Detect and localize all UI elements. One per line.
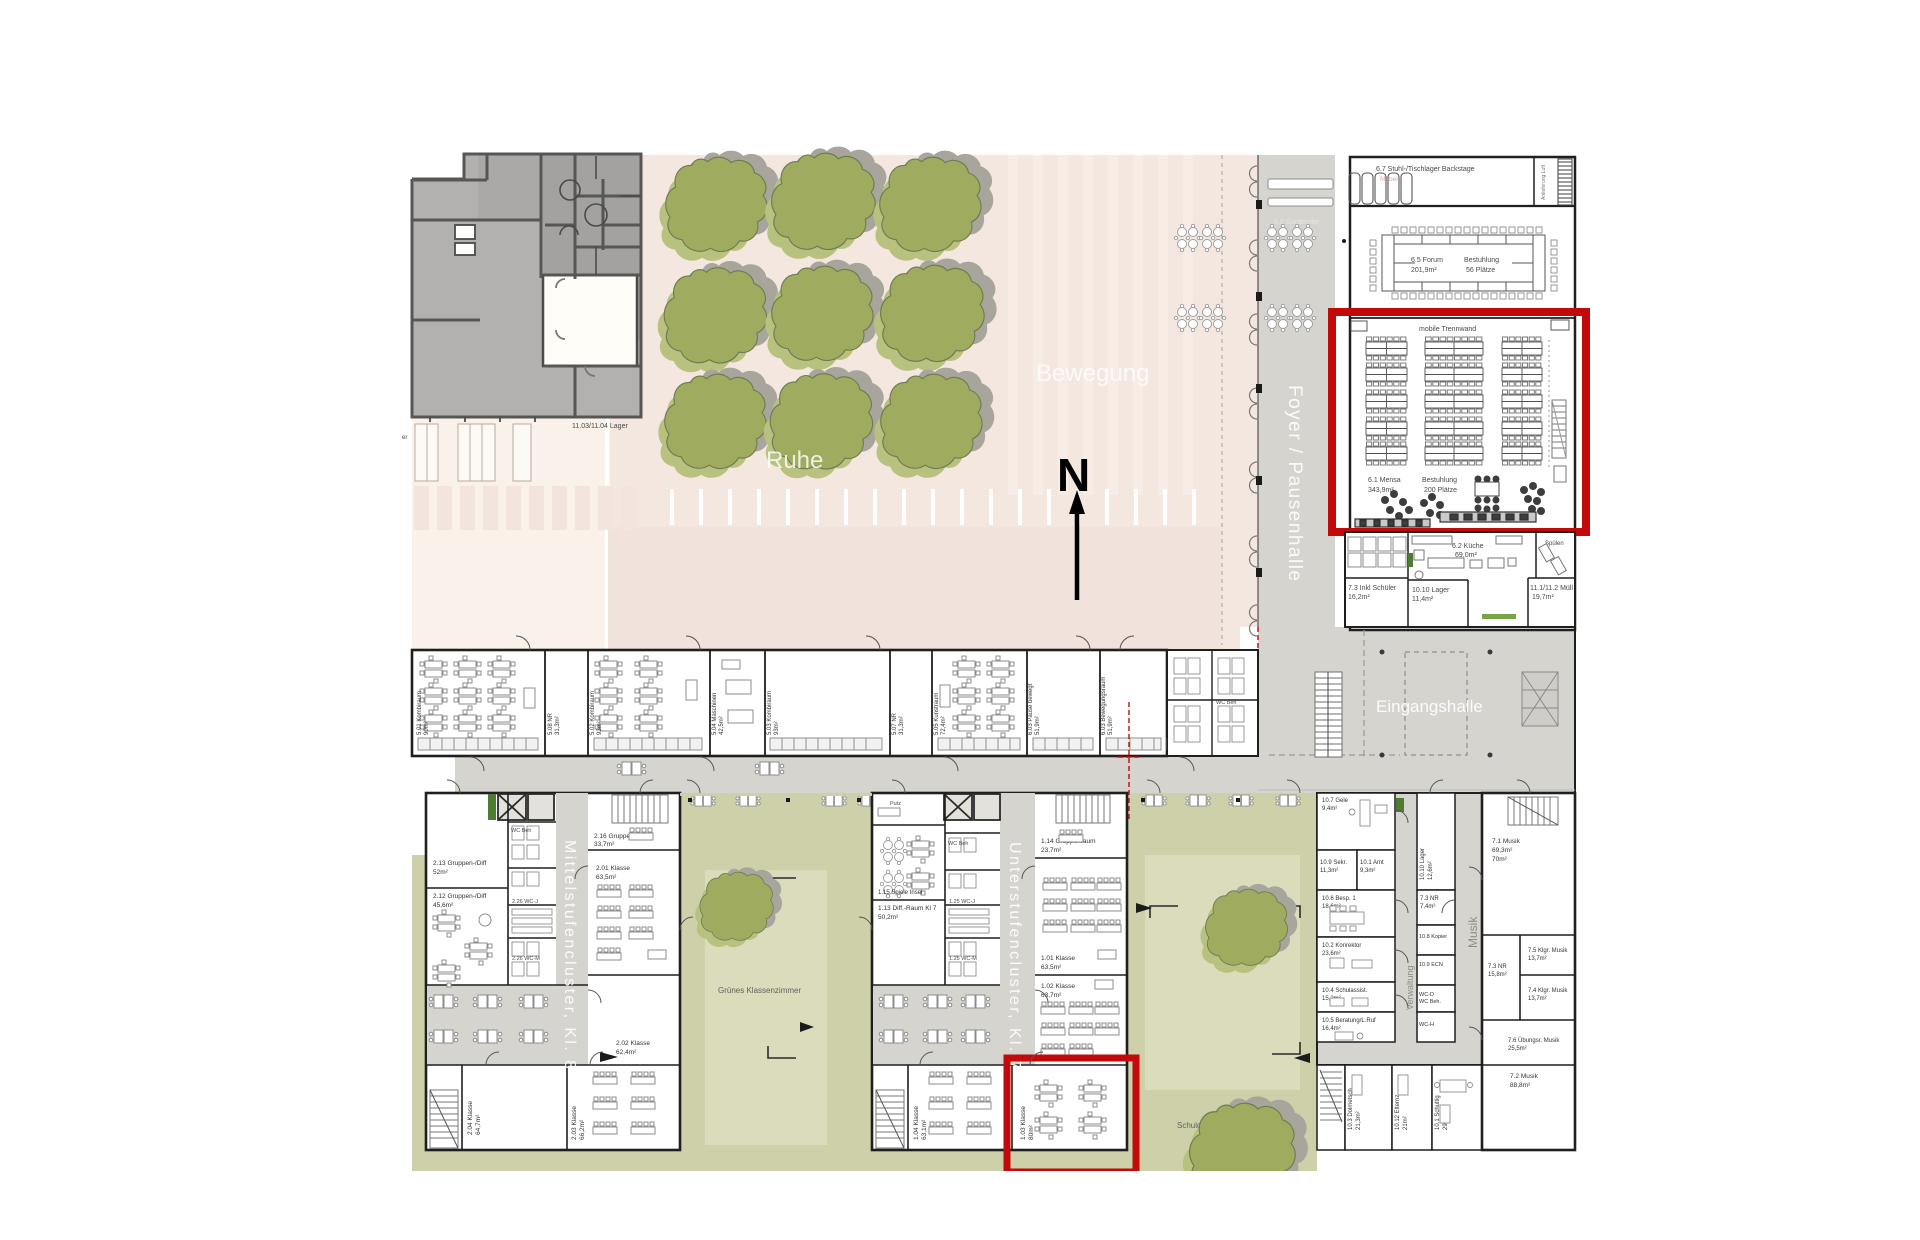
svg-text:mobile Trennwand: mobile Trennwand bbox=[1419, 326, 1476, 333]
svg-text:2.12 Gruppen-/Diff: 2.12 Gruppen-/Diff bbox=[433, 893, 487, 900]
svg-text:21m²: 21m² bbox=[1403, 1116, 1409, 1130]
svg-text:10.7 Gele: 10.7 Gele bbox=[1322, 798, 1349, 804]
svg-text:Foyer / Pausenhalle: Foyer / Pausenhalle bbox=[1284, 385, 1305, 583]
svg-text:Eingangshalle: Eingangshalle bbox=[1376, 697, 1483, 716]
svg-text:6.5 Forum: 6.5 Forum bbox=[1411, 257, 1443, 264]
svg-text:1.02 Klasse: 1.02 Klasse bbox=[1041, 983, 1075, 990]
svg-text:63,1m²: 63,1m² bbox=[921, 1119, 928, 1140]
svg-text:11,3m²: 11,3m² bbox=[1320, 868, 1338, 874]
svg-text:70m²: 70m² bbox=[1492, 856, 1508, 863]
svg-text:10.6 Besp. 1: 10.6 Besp. 1 bbox=[1322, 896, 1356, 902]
svg-text:88,8m²: 88,8m² bbox=[1510, 1082, 1531, 1089]
svg-text:5.07 NR: 5.07 NR bbox=[892, 712, 898, 735]
svg-text:200 Plätze: 200 Plätze bbox=[1424, 487, 1457, 494]
svg-text:Ruhe: Ruhe bbox=[766, 447, 823, 474]
svg-text:16,4m²: 16,4m² bbox=[1322, 1026, 1341, 1032]
svg-text:5.01 Kombiraum: 5.01 Kombiraum bbox=[417, 691, 423, 735]
svg-text:23,7m²: 23,7m² bbox=[1041, 847, 1062, 854]
svg-text:WC Beh: WC Beh bbox=[1216, 700, 1236, 706]
svg-text:2.03 Klasse: 2.03 Klasse bbox=[571, 1106, 578, 1140]
svg-text:Möbel: Möbel bbox=[1380, 176, 1398, 183]
svg-text:2.26 WC-M: 2.26 WC-M bbox=[512, 956, 540, 962]
svg-text:Bestuhlung: Bestuhlung bbox=[1464, 257, 1499, 264]
svg-text:52m²: 52m² bbox=[433, 869, 449, 876]
svg-text:1.25 WC-J: 1.25 WC-J bbox=[949, 899, 975, 905]
svg-text:201,9m²: 201,9m² bbox=[1411, 267, 1437, 274]
svg-text:45,6m²: 45,6m² bbox=[433, 902, 454, 909]
svg-text:5.04 Maschinen: 5.04 Maschinen bbox=[712, 693, 718, 735]
svg-text:11.1/11.2 Müll: 11.1/11.2 Müll bbox=[1530, 585, 1573, 592]
svg-text:10.10 Lager: 10.10 Lager bbox=[1412, 587, 1450, 594]
svg-text:2.04 Klasse: 2.04 Klasse bbox=[467, 1101, 474, 1135]
svg-text:50,2m²: 50,2m² bbox=[878, 914, 899, 921]
svg-text:Unterstufencluster, Kl. 7: Unterstufencluster, Kl. 7 bbox=[1006, 842, 1023, 1072]
svg-text:2.13 Gruppen-/Diff: 2.13 Gruppen-/Diff bbox=[433, 860, 487, 867]
svg-text:31,3m²: 31,3m² bbox=[899, 716, 905, 735]
svg-text:15,8m²: 15,8m² bbox=[1488, 972, 1507, 978]
svg-text:7.6 Übungsr. Musik: 7.6 Übungsr. Musik bbox=[1508, 1037, 1560, 1044]
svg-text:93m²: 93m² bbox=[774, 721, 780, 735]
svg-text:10.5 Beratung/L.Ruf: 10.5 Beratung/L.Ruf bbox=[1322, 1018, 1376, 1024]
svg-text:66,2m²: 66,2m² bbox=[579, 1119, 586, 1140]
svg-text:63,5m²: 63,5m² bbox=[1041, 964, 1062, 971]
svg-text:Musik: Musik bbox=[1466, 916, 1480, 948]
svg-text:7.3 NR: 7.3 NR bbox=[1420, 896, 1439, 902]
svg-text:7.4 Klgr. Musik: 7.4 Klgr. Musik bbox=[1528, 988, 1568, 994]
svg-text:1.03 Klasse: 1.03 Klasse bbox=[1020, 1106, 1027, 1140]
svg-text:62,4m²: 62,4m² bbox=[616, 1049, 637, 1056]
svg-text:WC-D: WC-D bbox=[1419, 992, 1434, 998]
svg-text:10.12 Elternz.: 10.12 Elternz. bbox=[1395, 1093, 1401, 1130]
svg-text:9,4m²: 9,4m² bbox=[1322, 806, 1337, 812]
svg-text:7,4m²: 7,4m² bbox=[1420, 904, 1435, 910]
svg-text:6.03 Bewegungsraum: 6.03 Bewegungsraum bbox=[1101, 677, 1107, 735]
svg-text:Verwaltung: Verwaltung bbox=[1405, 965, 1415, 1010]
svg-text:10.9 Sekr.: 10.9 Sekr. bbox=[1320, 860, 1347, 866]
svg-text:56 Plätze: 56 Plätze bbox=[1466, 267, 1495, 274]
svg-text:13,7m²: 13,7m² bbox=[1528, 996, 1547, 1002]
svg-text:7.5 Klgr. Musik: 7.5 Klgr. Musik bbox=[1528, 948, 1568, 954]
svg-text:12,6m²: 12,6m² bbox=[1428, 861, 1434, 880]
svg-text:WC Beh.: WC Beh. bbox=[1419, 999, 1441, 1005]
svg-text:10.2 Konrektor: 10.2 Konrektor bbox=[1322, 943, 1361, 949]
svg-text:23,6m²: 23,6m² bbox=[1322, 951, 1341, 957]
svg-text:69,3m²: 69,3m² bbox=[1492, 847, 1513, 854]
svg-text:21,3m²: 21,3m² bbox=[1356, 1111, 1362, 1130]
svg-text:11.03/11.04 Lager: 11.03/11.04 Lager bbox=[572, 423, 628, 430]
svg-text:93m²: 93m² bbox=[597, 721, 603, 735]
svg-text:9,3m²: 9,3m² bbox=[1360, 868, 1375, 874]
svg-text:Bewegung: Bewegung bbox=[1036, 360, 1149, 387]
svg-text:er: er bbox=[402, 435, 407, 441]
svg-text:42,5m²: 42,5m² bbox=[719, 716, 725, 735]
svg-text:WC Beh: WC Beh bbox=[948, 841, 968, 847]
svg-text:Putz: Putz bbox=[890, 801, 901, 807]
svg-text:13,7m²: 13,7m² bbox=[1528, 956, 1547, 962]
svg-text:7.3 Inkl Schüler: 7.3 Inkl Schüler bbox=[1348, 585, 1397, 592]
svg-text:6.7 Stuhl-/Tischlager Backsta: 6.7 Stuhl-/Tischlager Backstage bbox=[1376, 166, 1475, 173]
svg-text:6.03 Pause bewegt: 6.03 Pause bewegt bbox=[1028, 683, 1034, 735]
svg-text:16,2m²: 16,2m² bbox=[1348, 594, 1370, 601]
svg-text:72,4m²: 72,4m² bbox=[941, 716, 947, 735]
svg-text:7.1 Musik: 7.1 Musik bbox=[1492, 838, 1521, 845]
svg-text:25,5m²: 25,5m² bbox=[1508, 1046, 1527, 1052]
svg-text:1.25 WC-M: 1.25 WC-M bbox=[949, 956, 977, 962]
svg-text:1.15 Spiele Insel: 1.15 Spiele Insel bbox=[878, 890, 922, 896]
svg-text:10.1 Amt: 10.1 Amt bbox=[1360, 860, 1384, 866]
svg-text:7.3 NR: 7.3 NR bbox=[1488, 964, 1507, 970]
svg-text:31,3m²: 31,3m² bbox=[555, 716, 561, 735]
svg-text:63,7m²: 63,7m² bbox=[1041, 992, 1062, 999]
svg-text:7.2 Musik: 7.2 Musik bbox=[1510, 1073, 1539, 1080]
svg-text:6.1 Mensa: 6.1 Mensa bbox=[1368, 477, 1401, 484]
svg-text:WC-H: WC-H bbox=[1419, 1022, 1434, 1028]
svg-text:64,7m²: 64,7m² bbox=[475, 1114, 482, 1135]
svg-text:N: N bbox=[1057, 449, 1090, 501]
svg-text:2.02 Klasse: 2.02 Klasse bbox=[616, 1040, 650, 1047]
svg-text:51,9m²: 51,9m² bbox=[1108, 716, 1114, 735]
svg-text:10.8 Kopier: 10.8 Kopier bbox=[1419, 934, 1447, 940]
svg-text:1.13 Diff.-Raum Kl 7: 1.13 Diff.-Raum Kl 7 bbox=[878, 905, 937, 912]
svg-text:11,4m²: 11,4m² bbox=[1412, 596, 1434, 603]
svg-text:2.01 Klasse: 2.01 Klasse bbox=[596, 865, 630, 872]
svg-text:51,9m²: 51,9m² bbox=[1035, 716, 1041, 735]
svg-text:5.05 Kunstraum: 5.05 Kunstraum bbox=[934, 693, 940, 735]
svg-text:5.03 Kombiraum: 5.03 Kombiraum bbox=[767, 691, 773, 735]
svg-text:5.08 NR: 5.08 NR bbox=[548, 712, 554, 735]
svg-text:6.2 Küche: 6.2 Küche bbox=[1452, 543, 1484, 550]
svg-text:19,7m²: 19,7m² bbox=[1532, 594, 1554, 601]
svg-text:80m²: 80m² bbox=[1028, 1124, 1035, 1140]
svg-text:33,7m²: 33,7m² bbox=[594, 841, 615, 848]
svg-text:WC Beh: WC Beh bbox=[511, 828, 531, 834]
svg-text:5.02 Kombiraum: 5.02 Kombiraum bbox=[590, 691, 596, 735]
svg-text:Anlieferung Luft: Anlieferung Luft bbox=[1541, 164, 1547, 200]
svg-text:63,5m²: 63,5m² bbox=[596, 874, 617, 881]
svg-text:Bestuhlung: Bestuhlung bbox=[1422, 477, 1457, 484]
svg-text:90m²: 90m² bbox=[424, 721, 430, 735]
svg-text:10.9 ECN: 10.9 ECN bbox=[1419, 962, 1443, 968]
svg-text:10.10 Lager: 10.10 Lager bbox=[1420, 848, 1426, 880]
svg-text:1.01 Klasse: 1.01 Klasse bbox=[1041, 955, 1075, 962]
svg-text:10.4 Schulassist.: 10.4 Schulassist. bbox=[1322, 988, 1368, 994]
svg-text:Grünes Klassenzimmer: Grünes Klassenzimmer bbox=[718, 986, 801, 995]
svg-text:1.04 Klasse: 1.04 Klasse bbox=[913, 1106, 920, 1140]
svg-text:2.26 WC-J: 2.26 WC-J bbox=[512, 899, 538, 905]
